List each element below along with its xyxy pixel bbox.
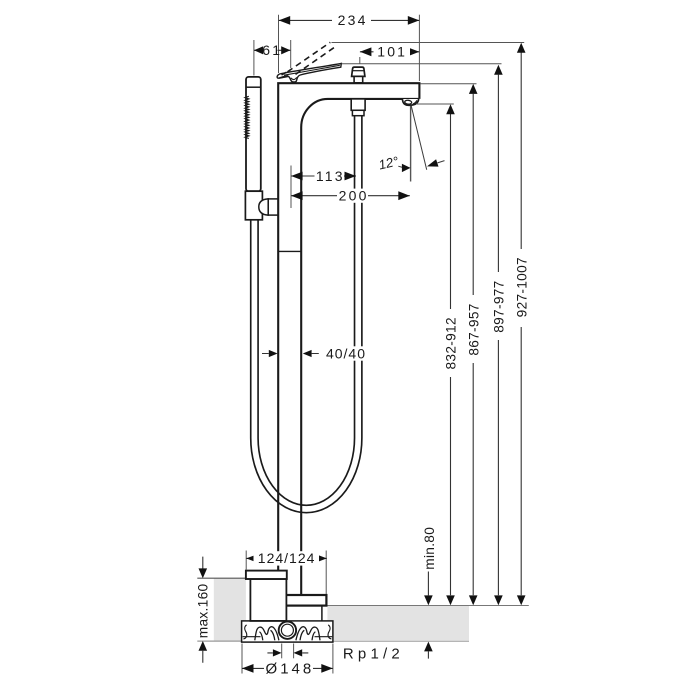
svg-text:200: 200 — [339, 188, 369, 204]
svg-text:113: 113 — [316, 168, 345, 184]
svg-text:867-957: 867-957 — [466, 303, 481, 355]
svg-text:927-1007: 927-1007 — [515, 257, 530, 317]
svg-text:897-977: 897-977 — [492, 280, 507, 332]
svg-text:Rp1/2: Rp1/2 — [343, 645, 404, 662]
svg-text:124/124: 124/124 — [258, 550, 316, 566]
svg-text:61: 61 — [262, 42, 282, 58]
svg-text:Ø148: Ø148 — [266, 661, 315, 678]
svg-text:234: 234 — [338, 12, 368, 28]
svg-text:40/40: 40/40 — [326, 345, 366, 361]
svg-text:min.80: min.80 — [422, 527, 437, 570]
svg-text:101: 101 — [377, 44, 407, 60]
svg-text:832-912: 832-912 — [444, 317, 459, 369]
svg-text:max.160: max.160 — [196, 584, 211, 639]
